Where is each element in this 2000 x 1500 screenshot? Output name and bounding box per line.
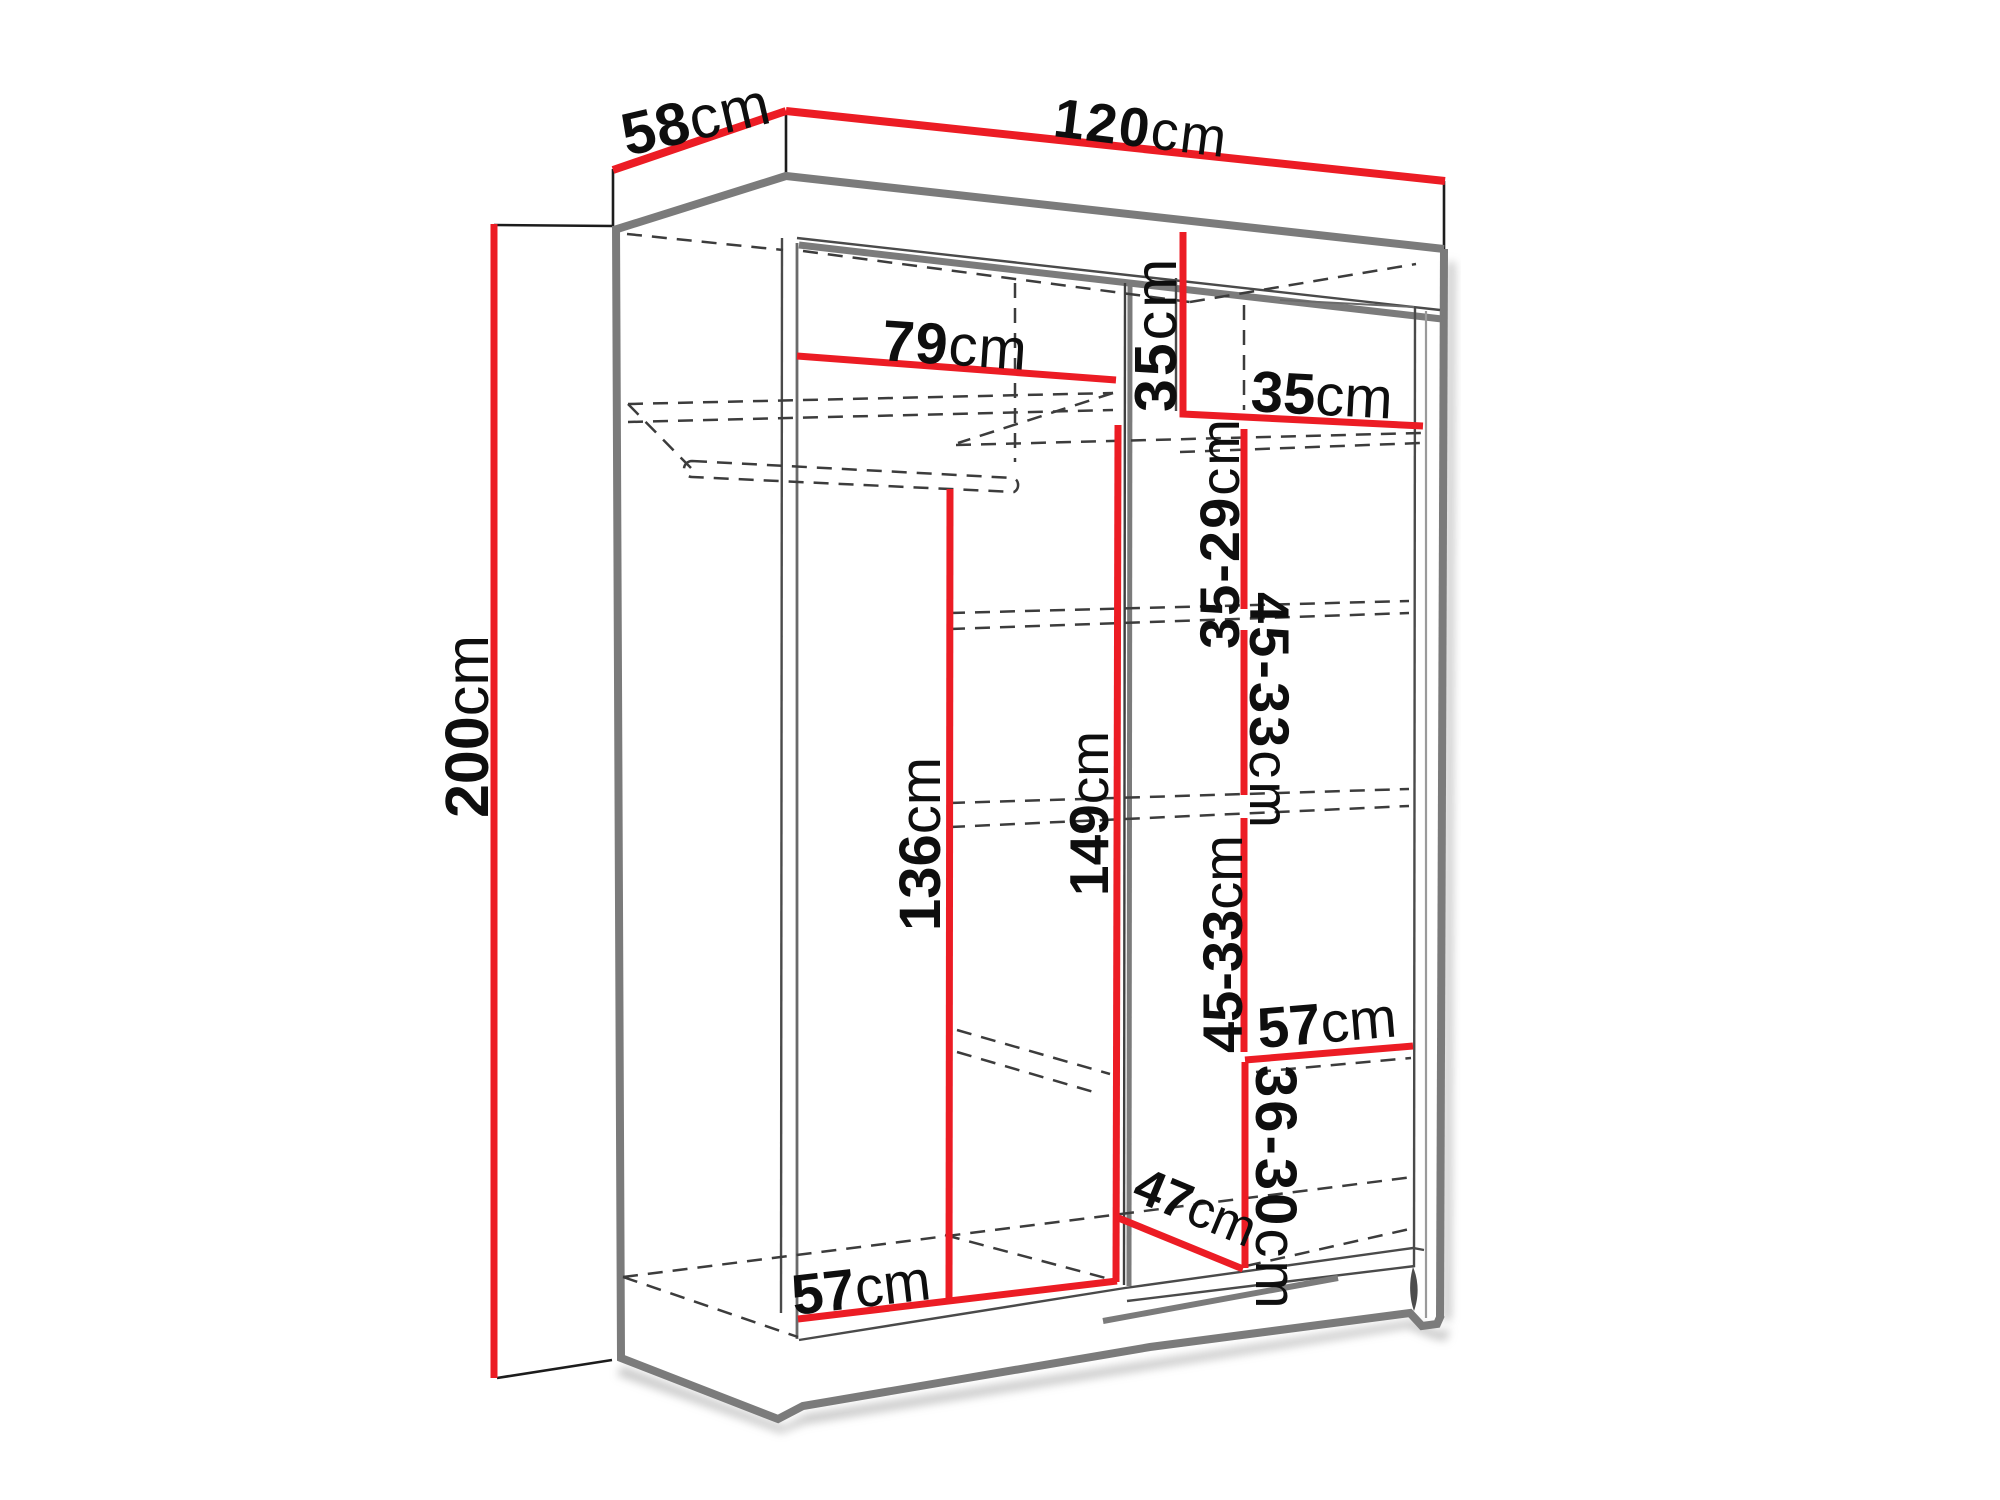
svg-text:45-33cm: 45-33cm [1191, 835, 1254, 1053]
svg-text:35cm: 35cm [1249, 359, 1394, 432]
svg-text:149cm: 149cm [1058, 731, 1120, 896]
svg-text:200cm: 200cm [433, 635, 501, 818]
svg-text:35cm: 35cm [1123, 256, 1189, 412]
svg-text:36-30cm: 36-30cm [1243, 1065, 1308, 1312]
svg-text:57cm: 57cm [1255, 986, 1399, 1061]
svg-text:136cm: 136cm [888, 757, 953, 931]
svg-text:45-33cm: 45-33cm [1238, 592, 1301, 831]
svg-text:79cm: 79cm [880, 308, 1030, 383]
